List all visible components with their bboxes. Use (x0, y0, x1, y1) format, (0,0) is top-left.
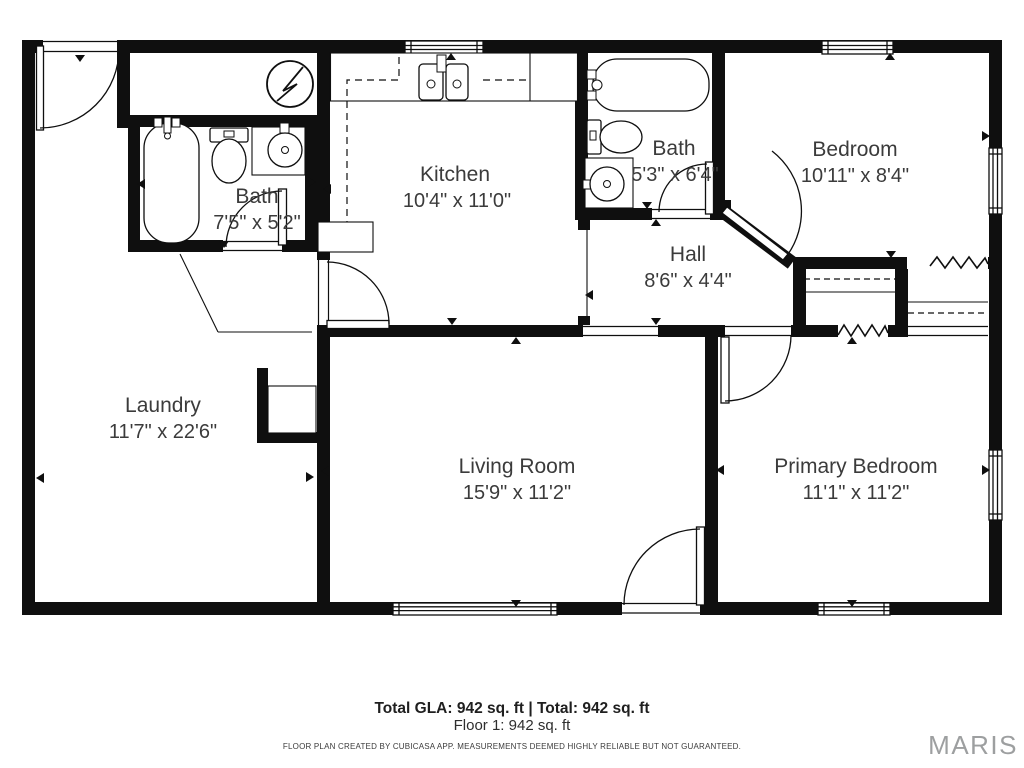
room-dims-bath-2: 5'3" x 6'4" (631, 164, 718, 186)
room-label-kitchen: Kitchen (420, 163, 490, 186)
door-living-rear (624, 527, 705, 605)
door-primary-bedroom (721, 335, 791, 403)
window-bedroom-right (989, 148, 1002, 214)
room-dims-bath-1: 7'5" x 5'2" (213, 212, 300, 234)
maris-logo: MARIS (928, 730, 1018, 761)
window-primary-right (989, 450, 1002, 520)
window-bedroom-top (822, 41, 893, 54)
room-label-bath-2: Bath (652, 137, 695, 160)
room-label-primary-bedroom: Primary Bedroom (774, 455, 937, 478)
total-gla-line: Total GLA: 942 sq. ft | Total: 942 sq. f… (0, 700, 1024, 717)
door-kitchen (327, 262, 389, 329)
window-living-bottom (393, 603, 557, 615)
zigzag-symbol (838, 325, 888, 336)
sink-icon (583, 158, 633, 208)
room-label-living-room: Living Room (459, 455, 576, 478)
disclaimer-text: FLOOR PLAN CREATED BY CUBICASA APP. MEAS… (0, 742, 1024, 751)
laundry-closet-shelf (268, 386, 316, 433)
room-labels: Bath 7'5" x 5'2" Kitchen 10'4" x 11'0" B… (109, 137, 938, 504)
zigzag-symbol (930, 257, 988, 268)
room-dims-hall: 8'6" x 4'4" (644, 270, 731, 292)
toilet-icon (210, 128, 248, 183)
floor-plan-page: Bath 7'5" x 5'2" Kitchen 10'4" x 11'0" B… (0, 0, 1024, 768)
room-label-bedroom: Bedroom (812, 138, 897, 161)
room-dims-kitchen: 10'4" x 11'0" (403, 190, 511, 212)
room-label-bath-1: Bath (235, 185, 278, 208)
bathtub-icon (144, 117, 199, 243)
floor-plan-drawing: Bath 7'5" x 5'2" Kitchen 10'4" x 11'0" B… (0, 0, 1024, 768)
toilet-icon (587, 120, 642, 154)
floor-area-line: Floor 1: 942 sq. ft (0, 717, 1024, 734)
room-dims-laundry: 11'7" x 22'6" (109, 421, 217, 443)
room-dims-bedroom: 10'11" x 8'4" (801, 165, 909, 187)
room-dims-primary-bedroom: 11'1" x 11'2" (803, 482, 910, 504)
electrical-panel-icon (267, 61, 313, 107)
door-bedroom (722, 151, 801, 260)
room-label-laundry: Laundry (125, 394, 201, 417)
window-kitchen-top (405, 41, 483, 54)
area-summary: Total GLA: 942 sq. ft | Total: 942 sq. f… (0, 700, 1024, 734)
window-primary-bottom (818, 603, 890, 615)
room-dims-living-room: 15'9" x 11'2" (463, 482, 571, 504)
bathtub-icon (587, 59, 709, 111)
sink-icon (252, 123, 305, 175)
room-label-hall: Hall (670, 243, 706, 266)
